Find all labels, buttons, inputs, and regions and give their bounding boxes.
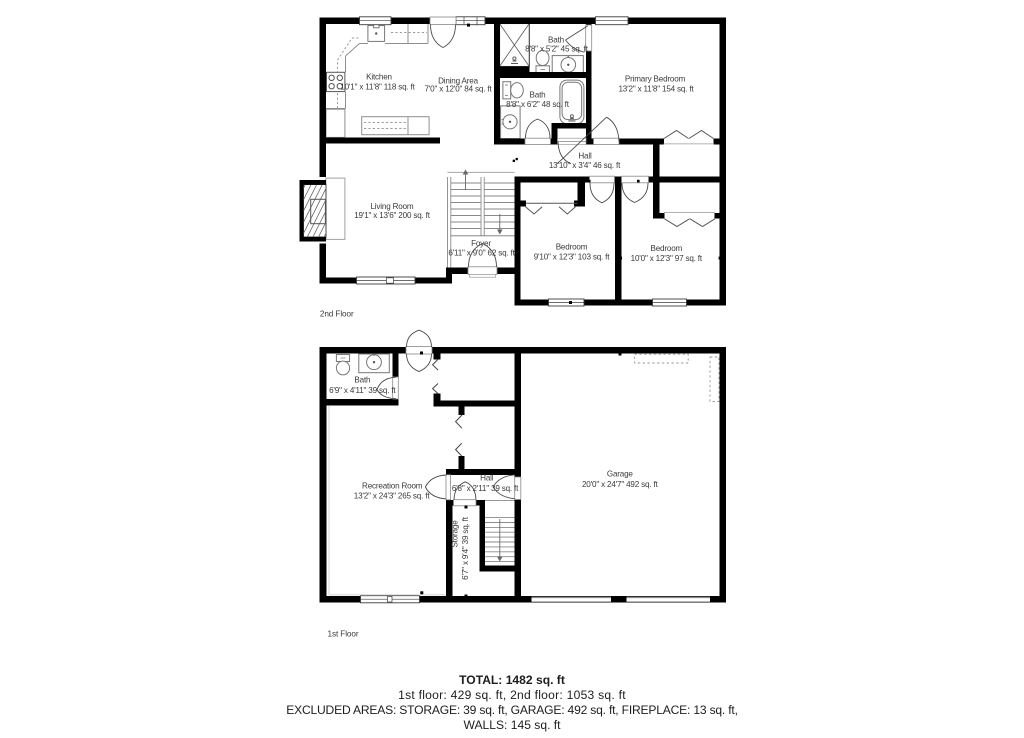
svg-text:Garage: Garage — [607, 469, 634, 478]
svg-text:Foyer: Foyer — [471, 239, 491, 248]
svg-text:7'0" x 12'0" 84 sq. ft: 7'0" x 12'0" 84 sq. ft — [425, 85, 493, 94]
svg-text:Bedroom: Bedroom — [556, 242, 588, 251]
svg-text:13'10" x 3'4" 46 sq. ft: 13'10" x 3'4" 46 sq. ft — [549, 161, 621, 170]
svg-text:6'11" x 9'0" 62 sq. ft: 6'11" x 9'0" 62 sq. ft — [448, 249, 515, 258]
svg-text:Bedroom: Bedroom — [651, 244, 683, 253]
svg-text:8'8" x 5'2" 45 sq. ft: 8'8" x 5'2" 45 sq. ft — [525, 44, 589, 53]
svg-text:6'9" x 4'11" 39 sq. ft: 6'9" x 4'11" 39 sq. ft — [329, 386, 396, 395]
svg-text:Storage: Storage — [451, 520, 460, 548]
svg-text:EXCLUDED AREAS: STORAGE: 39 sq: EXCLUDED AREAS: STORAGE: 39 sq. ft, GARA… — [286, 703, 738, 717]
svg-text:Hall: Hall — [480, 473, 494, 482]
svg-text:2nd Floor: 2nd Floor — [320, 310, 354, 319]
svg-text:Living Room: Living Room — [370, 202, 413, 211]
svg-text:19'1" x 13'6" 200 sq. ft: 19'1" x 13'6" 200 sq. ft — [354, 211, 431, 220]
svg-text:Bath: Bath — [530, 90, 546, 99]
svg-text:Recreation Room: Recreation Room — [362, 481, 423, 490]
svg-text:13'2" x 24'3" 265 sq. ft: 13'2" x 24'3" 265 sq. ft — [354, 491, 431, 500]
svg-text:Bath: Bath — [354, 375, 370, 384]
svg-text:Bath: Bath — [548, 35, 564, 44]
svg-text:8'8" x 6'2" 48 sq. ft: 8'8" x 6'2" 48 sq. ft — [506, 100, 570, 109]
svg-text:10'0" x 12'3" 97 sq. ft: 10'0" x 12'3" 97 sq. ft — [631, 254, 703, 263]
svg-text:13'2" x 11'8" 154 sq. ft: 13'2" x 11'8" 154 sq. ft — [618, 84, 694, 93]
svg-text:WALLS: 145 sq. ft: WALLS: 145 sq. ft — [463, 718, 561, 732]
svg-text:Kitchen: Kitchen — [366, 72, 392, 81]
svg-text:6'7" x 9'4" 39 sq. ft: 6'7" x 9'4" 39 sq. ft — [461, 516, 470, 580]
svg-text:10'1" x 11'8" 118 sq. ft: 10'1" x 11'8" 118 sq. ft — [340, 83, 415, 92]
svg-text:1st floor: 429 sq. ft, 2nd flo: 1st floor: 429 sq. ft, 2nd floor: 1053 s… — [398, 688, 626, 702]
svg-text:6'8" x 2'11" 39 sq. ft: 6'8" x 2'11" 39 sq. ft — [452, 484, 519, 493]
svg-text:TOTAL: 1482 sq. ft: TOTAL: 1482 sq. ft — [459, 673, 565, 687]
svg-text:Hall: Hall — [578, 151, 592, 160]
svg-text:20'0" x 24'7" 492 sq. ft: 20'0" x 24'7" 492 sq. ft — [582, 480, 659, 489]
svg-text:Primary Bedroom: Primary Bedroom — [625, 74, 686, 83]
svg-text:9'10" x 12'3" 103 sq. ft: 9'10" x 12'3" 103 sq. ft — [534, 252, 611, 261]
svg-text:1st Floor: 1st Floor — [328, 630, 359, 639]
